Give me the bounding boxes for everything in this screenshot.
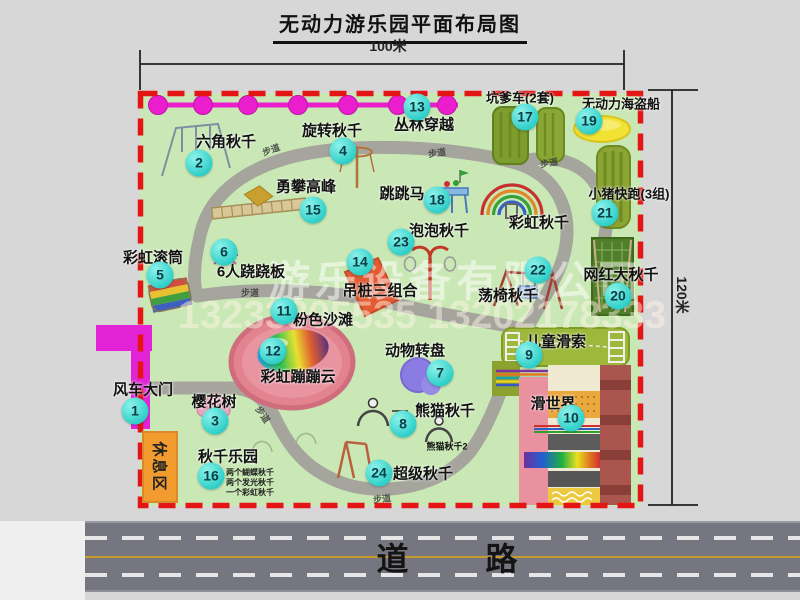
attraction-11-label: 粉色沙滩: [293, 309, 353, 330]
attraction-2-badge: 2: [186, 150, 213, 177]
width-dimension-label: 100米: [369, 36, 406, 56]
path-label: 步道: [260, 140, 281, 158]
attraction-24-badge: 24: [366, 460, 393, 487]
attraction-11-badge: 11: [271, 298, 298, 325]
height-dimension-label: 120米: [672, 276, 692, 313]
swing-park-note: 一个彩虹秋千: [226, 488, 274, 498]
pink-beach-icon: [231, 316, 353, 408]
attraction-24-label: 超级秋千: [393, 463, 453, 484]
attraction-5-badge: 5: [147, 262, 174, 289]
swing-park-sketch-icon: [252, 434, 316, 453]
attraction-15-badge: 15: [300, 197, 327, 224]
attraction-13-badge: 13: [404, 94, 431, 121]
attraction-10-badge: 10: [558, 405, 585, 432]
attraction-16-badge: 16: [198, 463, 225, 490]
attraction-20-label: 网红大秋千: [583, 264, 658, 285]
rest-area-label: 休息区: [150, 441, 171, 492]
swing-park-note: 两个蝴蝶秋千: [226, 468, 274, 478]
attraction-12-badge: 12: [260, 338, 287, 365]
bottom-road: 道 路: [85, 521, 800, 592]
path-label: 步道: [241, 286, 259, 299]
attraction-15-label: 勇攀高峰: [276, 176, 336, 197]
panda-swing2-label: 熊猫秋千2: [426, 440, 467, 453]
watermark-phone: 13233805535 13202178333: [178, 294, 666, 338]
attraction-17-badge: 17: [512, 104, 539, 131]
attraction-23-label: 泡泡秋千: [409, 220, 469, 241]
attraction-3-badge: 3: [202, 408, 229, 435]
swing-park-notes: 两个蝴蝶秋千 两个发光秋千 一个彩虹秋千: [226, 468, 274, 498]
attraction-2-label: 六角秋千: [196, 131, 256, 152]
path-label: 步道: [372, 491, 391, 506]
path-label: 步道: [253, 403, 274, 425]
attraction-9-badge: 9: [516, 342, 543, 369]
attraction-22-label: 荡椅秋千: [478, 285, 538, 306]
attraction-6-badge: 6: [211, 239, 238, 266]
attraction-7-badge: 7: [427, 360, 454, 387]
attraction-20-badge: 20: [605, 283, 632, 310]
attraction-14-label: 吊桩三组合: [342, 280, 417, 301]
rest-area: 休息区: [142, 431, 178, 503]
path-label: 步道: [539, 155, 559, 171]
rainbow-swing-label: 彩虹秋千: [509, 212, 569, 233]
path-label: 步道: [427, 145, 447, 160]
attraction-4-label: 旋转秋千: [302, 120, 362, 141]
attraction-23-badge: 23: [388, 229, 415, 256]
attraction-19-badge: 19: [576, 108, 603, 135]
road-left-margin: [0, 521, 85, 600]
attraction-1-label: 风车大门: [113, 379, 173, 400]
attraction-18-badge: 18: [424, 187, 451, 214]
attraction-12-label: 彩虹蹦蹦云: [260, 366, 335, 387]
park-layout-page: 无动力游乐园平面布局图: [0, 0, 800, 600]
attraction-14-badge: 14: [347, 249, 374, 276]
slide-world-icon: [492, 361, 631, 505]
attraction-18-label: 跳跳马: [379, 183, 424, 204]
road-label: 道 路: [376, 534, 551, 580]
attraction-4-badge: 4: [330, 138, 357, 165]
walking-paths: [150, 147, 607, 489]
attraction-8-badge: 8: [390, 411, 417, 438]
swing-park-note: 两个发光秋千: [226, 478, 274, 488]
attraction-1-badge: 1: [122, 398, 149, 425]
attraction-7-label: 动物转盘: [385, 340, 445, 361]
attraction-22-badge: 22: [525, 257, 552, 284]
attraction-8-label: 熊猫秋千: [415, 400, 475, 421]
attraction-21-badge: 21: [592, 200, 619, 227]
